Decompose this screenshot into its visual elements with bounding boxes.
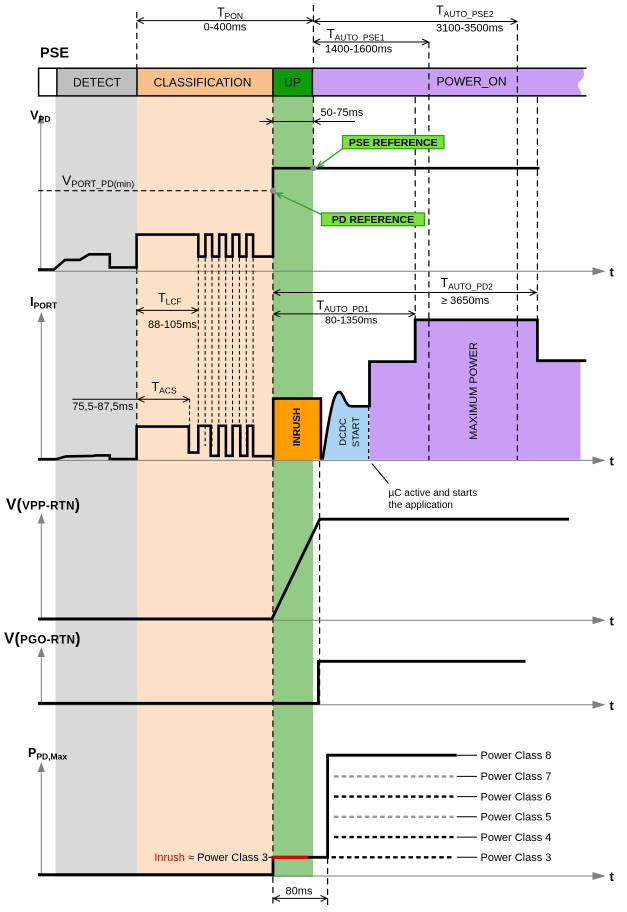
svg-text:t: t — [610, 264, 615, 279]
svg-text:75,5-87,5ms: 75,5-87,5ms — [72, 401, 134, 413]
svg-text:CLASSIFICATION: CLASSIFICATION — [154, 75, 252, 89]
svg-text:3100-3500ms: 3100-3500ms — [436, 23, 504, 35]
svg-text:≥ 3650ms: ≥ 3650ms — [441, 295, 490, 307]
svg-text:t: t — [610, 613, 615, 628]
svg-text:t: t — [610, 454, 615, 469]
svg-text:Power Class 3: Power Class 3 — [481, 852, 552, 864]
svg-text:POWER_ON: POWER_ON — [436, 74, 506, 88]
svg-text:the application: the application — [389, 500, 454, 511]
svg-text:t: t — [610, 869, 615, 884]
svg-text:80ms: 80ms — [286, 886, 313, 898]
svg-text:50-75ms: 50-75ms — [321, 107, 364, 119]
svg-text:µC active and starts: µC active and starts — [389, 488, 478, 499]
svg-text:Power Class 5: Power Class 5 — [481, 812, 552, 824]
svg-text:Power Class 7: Power Class 7 — [481, 771, 552, 783]
svg-text:88-105ms: 88-105ms — [148, 319, 197, 331]
svg-text:80-1350ms: 80-1350ms — [325, 315, 378, 327]
svg-text:Inrush ≈ Power Class 3: Inrush ≈ Power Class 3 — [154, 852, 268, 864]
svg-text:Power Class 4: Power Class 4 — [481, 832, 552, 844]
svg-text:INRUSH: INRUSH — [292, 408, 303, 446]
svg-text:UP: UP — [284, 75, 301, 89]
svg-text:t: t — [610, 698, 615, 713]
svg-text:START: START — [351, 417, 362, 447]
svg-text:0-400ms: 0-400ms — [204, 22, 247, 34]
svg-text:MAXIMUM POWER: MAXIMUM POWER — [468, 342, 480, 440]
svg-text:Power Class 8: Power Class 8 — [481, 750, 552, 762]
svg-text:DETECT: DETECT — [73, 75, 122, 89]
svg-text:1400-1600ms: 1400-1600ms — [325, 44, 393, 56]
svg-text:PSE REFERENCE: PSE REFERENCE — [349, 137, 438, 149]
svg-text:PD REFERENCE: PD REFERENCE — [332, 214, 414, 226]
svg-text:PSE: PSE — [40, 46, 69, 62]
svg-text:DCDC: DCDC — [338, 418, 349, 446]
svg-text:Power Class 6: Power Class 6 — [481, 791, 552, 803]
